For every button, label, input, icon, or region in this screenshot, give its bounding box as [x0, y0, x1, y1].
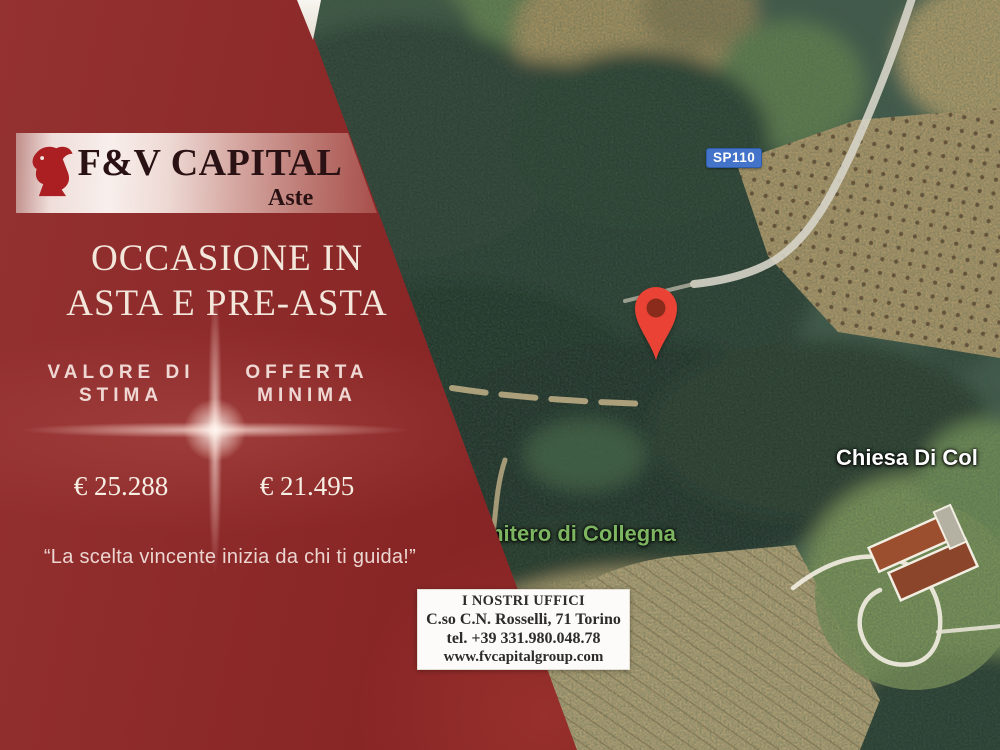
- road-badge-sp110: SP110: [706, 148, 762, 168]
- auction-flyer: SP110 Chiesa Di Col mitero di Collegna F…: [0, 0, 1000, 750]
- contact-title: I NOSTRI UFFICI: [418, 592, 629, 610]
- contact-address: C.so C.N. Rosselli, 71 Torino: [418, 610, 629, 629]
- map-label-church: Chiesa Di Col: [836, 445, 978, 471]
- map-label-cemetery: mitero di Collegna: [484, 521, 676, 547]
- contact-website-url: www.fvcapitalgroup.com: [418, 648, 629, 667]
- contact-box: I NOSTRI UFFICI C.so C.N. Rosselli, 71 T…: [417, 589, 630, 670]
- map-pin-icon: [627, 278, 687, 362]
- contact-phone: tel. +39 331.980.048.78: [418, 629, 629, 648]
